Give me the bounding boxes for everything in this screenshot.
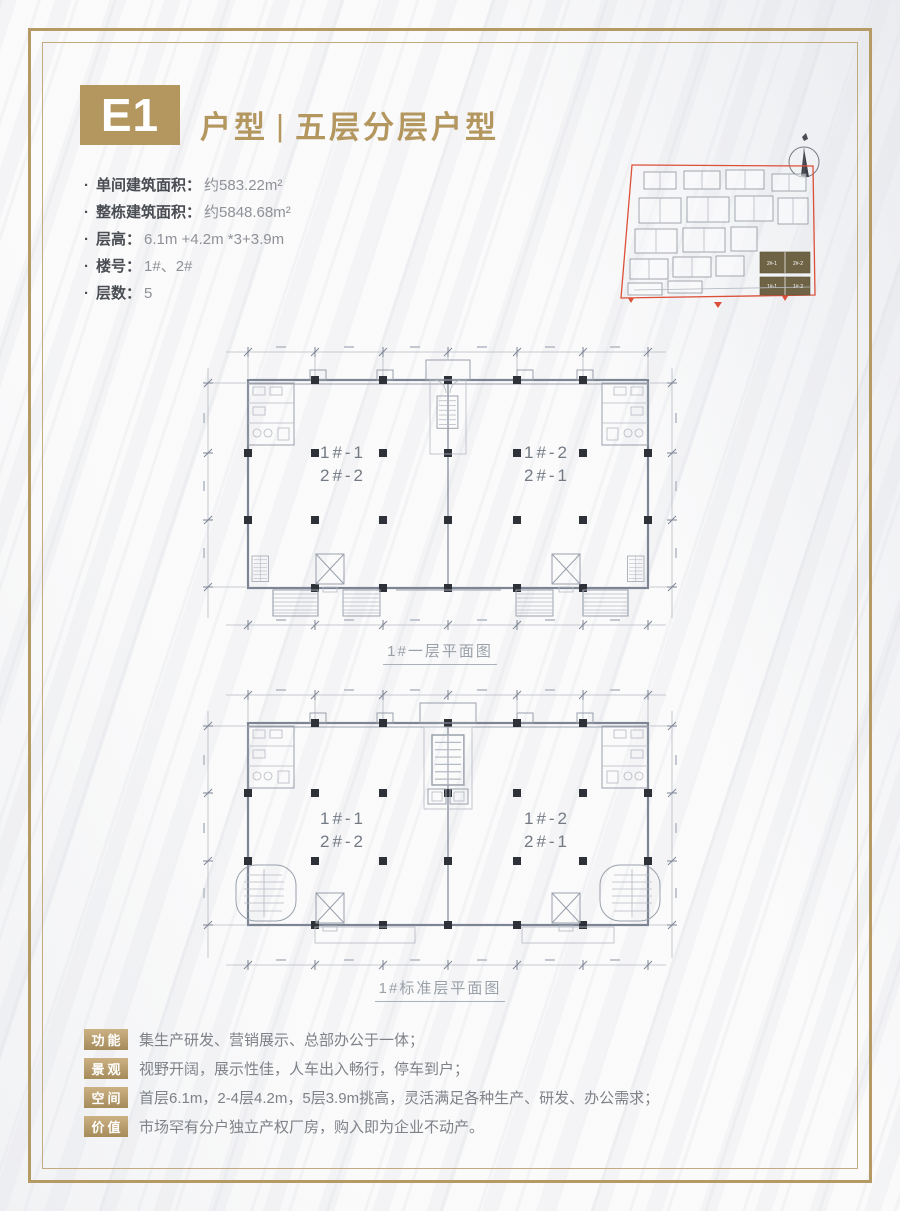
bullet: · — [84, 285, 89, 302]
unit-code-badge: E1 — [80, 85, 180, 145]
spec-item: ·楼号：1#、2# — [84, 253, 291, 280]
spec-label: 楼号： — [96, 258, 141, 275]
bullet: · — [84, 258, 89, 275]
feature-badge: 价值 — [84, 1116, 128, 1137]
floor-plan-1: 1#-1 2#-2 1#-2 2#-1 — [196, 338, 684, 638]
feature-text: 集生产研发、营销展示、总部办公于一体； — [139, 1029, 424, 1050]
title-right: 五层分层户型 — [295, 110, 499, 145]
spec-value: 约5848.68m² — [204, 204, 291, 221]
feature-row: 功能 集生产研发、营销展示、总部办公于一体； — [84, 1029, 659, 1050]
plan-2-caption: 1#标准层平面图 — [196, 977, 684, 1002]
unit-line: 1#-2 — [487, 441, 607, 464]
exterior-steps — [273, 590, 628, 616]
unit-line: 2#-2 — [283, 464, 403, 487]
spec-list: ·单间建筑面积：约583.22m² ·整栋建筑面积：约5848.68m² ·层高… — [84, 172, 291, 307]
feature-text: 视野开阔，展示性佳，人车出入畅行，停车到户； — [139, 1058, 469, 1079]
stair-elevator-core-right — [552, 554, 644, 592]
unit-code: E1 — [101, 88, 159, 142]
brochure-page: E1 户型|五层分层户型 ·单间建筑面积：约583.22m² ·整栋建筑面积：约… — [0, 0, 900, 1211]
spec-label: 层数： — [96, 285, 141, 302]
page-title: 户型|五层分层户型 — [200, 102, 499, 147]
site-plan-map: 2#-1 2#-2 1#-1 1#-2 — [614, 150, 829, 312]
site-unit-label: 2#-2 — [793, 261, 803, 267]
spec-value: 约583.22m² — [204, 177, 282, 194]
unit-label-left: 1#-1 2#-2 — [283, 807, 403, 853]
feature-row: 景观 视野开阔，展示性佳，人车出入畅行，停车到户； — [84, 1058, 659, 1079]
bullet: · — [84, 177, 89, 194]
floor-plan-2: 1#-1 2#-2 1#-2 2#-1 — [196, 683, 684, 983]
spec-item: ·单间建筑面积：约583.22m² — [84, 172, 291, 199]
feature-badge: 空间 — [84, 1087, 128, 1108]
title-left: 户型 — [200, 110, 268, 145]
site-highlight-building-1: 1#-1 1#-2 — [760, 277, 810, 295]
unit-line: 1#-2 — [487, 807, 607, 830]
unit-label-right: 1#-2 2#-1 — [487, 441, 607, 487]
unit-label-right: 1#-2 2#-1 — [487, 807, 607, 853]
restroom-left — [248, 383, 294, 445]
site-buildings — [628, 170, 808, 295]
spec-label: 整栋建筑面积： — [96, 204, 201, 221]
spec-label: 层高： — [96, 231, 141, 248]
spec-label: 单间建筑面积： — [96, 177, 201, 194]
feature-text: 市场罕有分户独立产权厂房，购入即为企业不动产。 — [139, 1116, 484, 1137]
feature-list: 功能 集生产研发、营销展示、总部办公于一体； 景观 视野开阔，展示性佳，人车出入… — [84, 1029, 659, 1145]
spec-item: ·层数：5 — [84, 280, 291, 307]
floor-plan-2-drawing — [196, 683, 684, 983]
feature-badge: 功能 — [84, 1029, 128, 1050]
feature-text: 首层6.1m，2-4层4.2m，5层3.9m挑高，灵活满足各种生产、研发、办公需… — [139, 1087, 659, 1108]
restroom-right — [602, 726, 648, 788]
bullet: · — [84, 231, 89, 248]
unit-line: 1#-1 — [283, 807, 403, 830]
spec-item: ·层高：6.1m +4.2m *3+3.9m — [84, 226, 291, 253]
canopy-outlines — [315, 927, 614, 943]
feature-row: 空间 首层6.1m，2-4层4.2m，5层3.9m挑高，灵活满足各种生产、研发、… — [84, 1087, 659, 1108]
site-unit-label: 2#-1 — [767, 261, 777, 267]
site-unit-label: 1#-1 — [767, 284, 777, 290]
floor-plan-1-drawing — [196, 338, 684, 638]
stair-elevator-core-left — [252, 554, 344, 592]
unit-line: 1#-1 — [283, 441, 403, 464]
spec-value: 1#、2# — [144, 258, 192, 275]
restroom-right — [602, 383, 648, 445]
unit-line: 2#-1 — [487, 464, 607, 487]
spec-value: 6.1m +4.2m *3+3.9m — [144, 231, 284, 248]
bullet: · — [84, 204, 89, 221]
unit-label-left: 1#-1 2#-2 — [283, 441, 403, 487]
plan-1-caption: 1#一层平面图 — [196, 640, 684, 665]
spec-item: ·整栋建筑面积：约5848.68m² — [84, 199, 291, 226]
unit-line: 2#-1 — [487, 830, 607, 853]
round-stair-left — [236, 865, 296, 921]
restroom-left — [248, 726, 294, 788]
unit-line: 2#-2 — [283, 830, 403, 853]
round-stair-right — [600, 865, 660, 921]
feature-badge: 景观 — [84, 1058, 128, 1079]
site-highlight-building-2: 2#-1 2#-2 — [760, 252, 810, 273]
title-separator: | — [276, 108, 287, 143]
spec-value: 5 — [144, 285, 152, 302]
feature-row: 价值 市场罕有分户独立产权厂房，购入即为企业不动产。 — [84, 1116, 659, 1137]
